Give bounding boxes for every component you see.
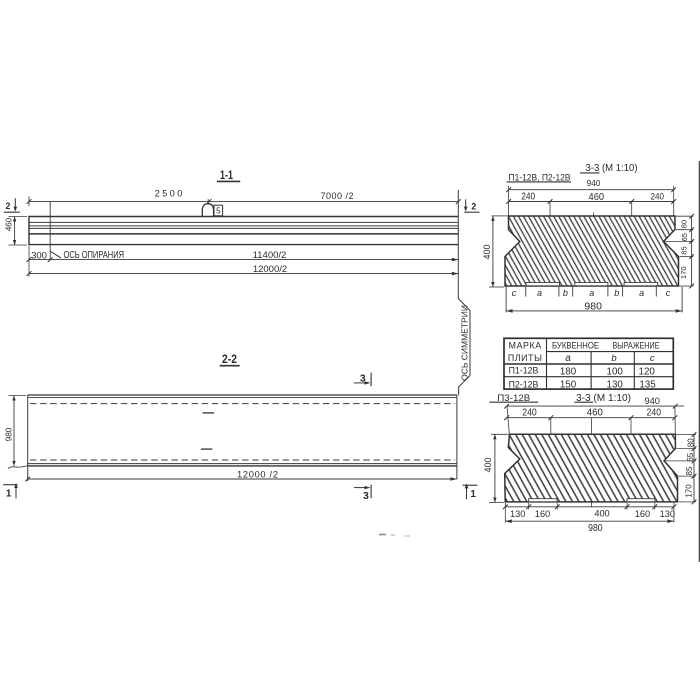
svg-text:3: 3	[363, 490, 369, 502]
svg-text:130: 130	[607, 380, 624, 391]
svg-text:1: 1	[470, 489, 476, 500]
svg-text:12000 /2: 12000 /2	[237, 470, 278, 480]
svg-text:85: 85	[685, 466, 694, 475]
svg-text:ПЛИТЫ: ПЛИТЫ	[508, 353, 543, 363]
svg-text:460: 460	[4, 217, 13, 231]
svg-text:a: a	[537, 288, 542, 298]
svg-text:460: 460	[587, 408, 604, 419]
svg-text:940: 940	[644, 396, 660, 406]
svg-text:160: 160	[535, 509, 550, 519]
svg-text:11400/2: 11400/2	[253, 250, 287, 261]
svg-text:5: 5	[216, 207, 221, 216]
svg-text:БУКВЕННОЕ: БУКВЕННОЕ	[552, 341, 599, 352]
svg-text:c: c	[512, 288, 517, 299]
svg-text:65: 65	[680, 233, 689, 241]
svg-text:2-2: 2-2	[222, 354, 237, 366]
svg-text:c: c	[650, 353, 655, 364]
svg-text:980: 980	[584, 300, 602, 312]
svg-text:a: a	[589, 288, 594, 298]
svg-text:b: b	[614, 288, 619, 298]
svg-text:b: b	[563, 288, 568, 298]
svg-text:980: 980	[3, 427, 13, 441]
svg-text:65: 65	[686, 452, 695, 461]
svg-text:c: c	[666, 288, 671, 298]
svg-text:80: 80	[679, 220, 688, 228]
svg-text:3-3 (М 1:10): 3-3 (М 1:10)	[586, 162, 638, 174]
svg-text:160: 160	[635, 509, 650, 519]
svg-text:80: 80	[687, 438, 696, 447]
svg-text:2500: 2500	[155, 189, 183, 199]
svg-text:120: 120	[639, 366, 656, 377]
svg-text:150: 150	[560, 380, 577, 391]
svg-text:П2-12В: П2-12В	[509, 379, 539, 389]
svg-text:7000 /2: 7000 /2	[321, 191, 354, 201]
svg-text:2: 2	[471, 202, 476, 212]
svg-text:a: a	[639, 288, 644, 298]
svg-text:300: 300	[31, 250, 47, 261]
svg-text:2: 2	[6, 201, 11, 211]
svg-text:П1-12В: П1-12В	[509, 366, 539, 376]
svg-text:1-1: 1-1	[220, 170, 233, 182]
svg-text:b: b	[611, 353, 616, 364]
svg-text:400: 400	[482, 244, 492, 259]
svg-text:240: 240	[651, 192, 665, 203]
svg-text:МАРКА: МАРКА	[509, 341, 542, 351]
svg-text:180: 180	[560, 366, 577, 377]
svg-text:240: 240	[522, 408, 537, 419]
svg-text:170: 170	[679, 266, 688, 279]
svg-text:ВЫРАЖЕНИЕ: ВЫРАЖЕНИЕ	[613, 341, 660, 352]
svg-text:ОСЬ СИММЕТРИИ: ОСЬ СИММЕТРИИ	[459, 305, 469, 381]
svg-text:130: 130	[660, 509, 675, 519]
svg-text:ОСЬ ОПИРАНИЯ: ОСЬ ОПИРАНИЯ	[64, 250, 125, 261]
svg-text:170: 170	[685, 484, 694, 498]
svg-text:85: 85	[679, 246, 688, 254]
svg-text:100: 100	[607, 366, 624, 377]
svg-text:135: 135	[639, 380, 656, 391]
svg-text:a: a	[565, 353, 571, 364]
svg-text:240: 240	[647, 408, 662, 419]
svg-text:240: 240	[521, 192, 535, 203]
svg-text:400: 400	[594, 508, 609, 518]
svg-text:130: 130	[510, 509, 525, 519]
svg-text:940: 940	[587, 179, 601, 188]
svg-text:980: 980	[588, 523, 603, 534]
svg-text:12000/2: 12000/2	[253, 264, 287, 275]
svg-text:1: 1	[6, 489, 12, 500]
svg-text:400: 400	[483, 457, 493, 472]
